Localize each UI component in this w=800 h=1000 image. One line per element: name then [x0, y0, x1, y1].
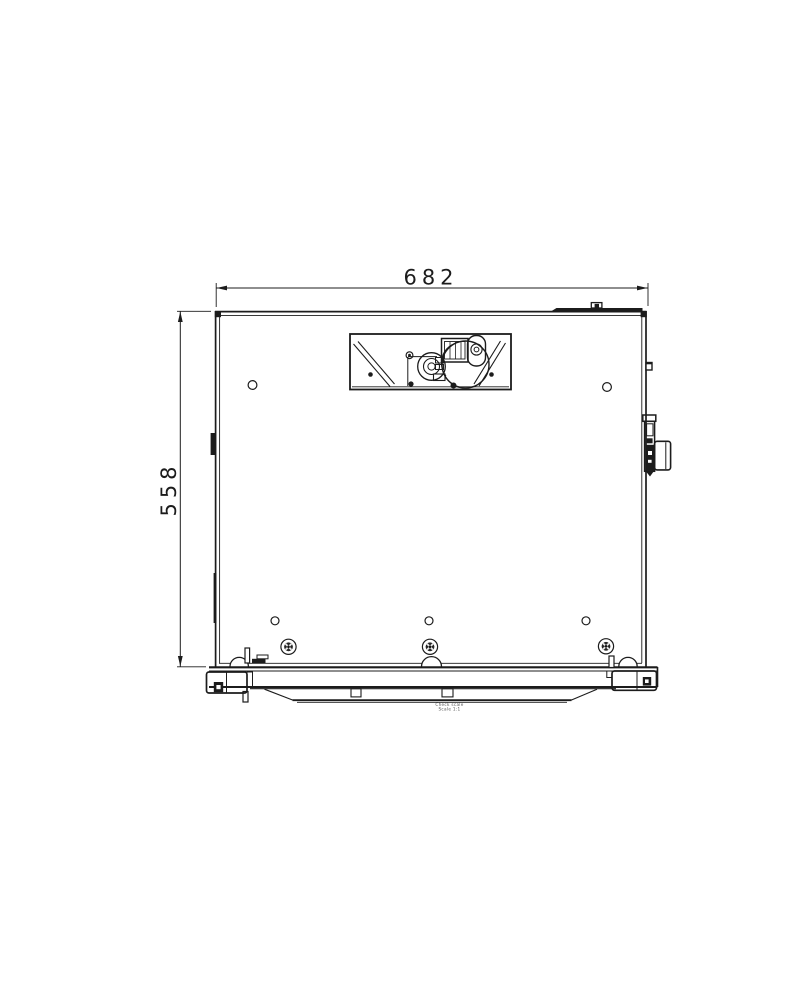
- arrowhead-top: [178, 312, 183, 323]
- mounting-hole: [582, 617, 590, 625]
- tray-clip: [351, 689, 361, 697]
- corner-weld-right: [641, 311, 647, 317]
- left-brace: [354, 342, 395, 387]
- screw-head: [281, 639, 296, 654]
- mounting-holes: [248, 381, 611, 625]
- mounting-hole: [425, 617, 433, 625]
- screw-heads: [281, 639, 614, 655]
- dimension-height-label: 558: [157, 461, 181, 516]
- left-hinge-latch: [245, 648, 268, 663]
- top-mounting-strip: [551, 303, 643, 312]
- dimension-width-label: 682: [403, 266, 458, 290]
- screw-head: [422, 639, 437, 654]
- left-edge-tab: [211, 433, 216, 455]
- dimension-height: 558: [157, 311, 211, 667]
- door-latch: [643, 415, 671, 477]
- panel-outline: [215, 311, 647, 667]
- right-edge-details: [643, 363, 671, 477]
- arrowhead-right: [637, 286, 648, 291]
- mounting-hole: [271, 617, 279, 625]
- capacitor: [468, 336, 486, 367]
- arrowhead-bottom: [178, 656, 183, 667]
- appliance-rear-view-drawing: 682 558: [0, 0, 800, 1000]
- mounting-hole: [248, 381, 257, 390]
- stamp-note: Check scale Scale 1:1: [435, 702, 463, 712]
- hinge-bump-center: [422, 657, 442, 667]
- tray-clip: [442, 689, 453, 697]
- stamp-note-line2: Scale 1:1: [438, 707, 460, 712]
- bottom-rail-assembly: [207, 648, 658, 702]
- latch-striker-block: [655, 441, 671, 470]
- fan-motor-detail: [350, 334, 511, 390]
- latch-tail: [646, 471, 654, 477]
- technical-drawing-canvas: 682 558: [0, 0, 800, 1000]
- right-rail-tab: [609, 656, 614, 668]
- corner-weld-left: [215, 311, 221, 317]
- arrowhead-left: [217, 286, 228, 291]
- dimension-width: 682: [216, 266, 648, 308]
- drip-tray: [250, 689, 616, 703]
- screw-head: [598, 639, 613, 654]
- hinge-bump-right: [619, 657, 637, 666]
- mounting-hole: [603, 383, 612, 392]
- left-edge-stiffener: [214, 573, 217, 623]
